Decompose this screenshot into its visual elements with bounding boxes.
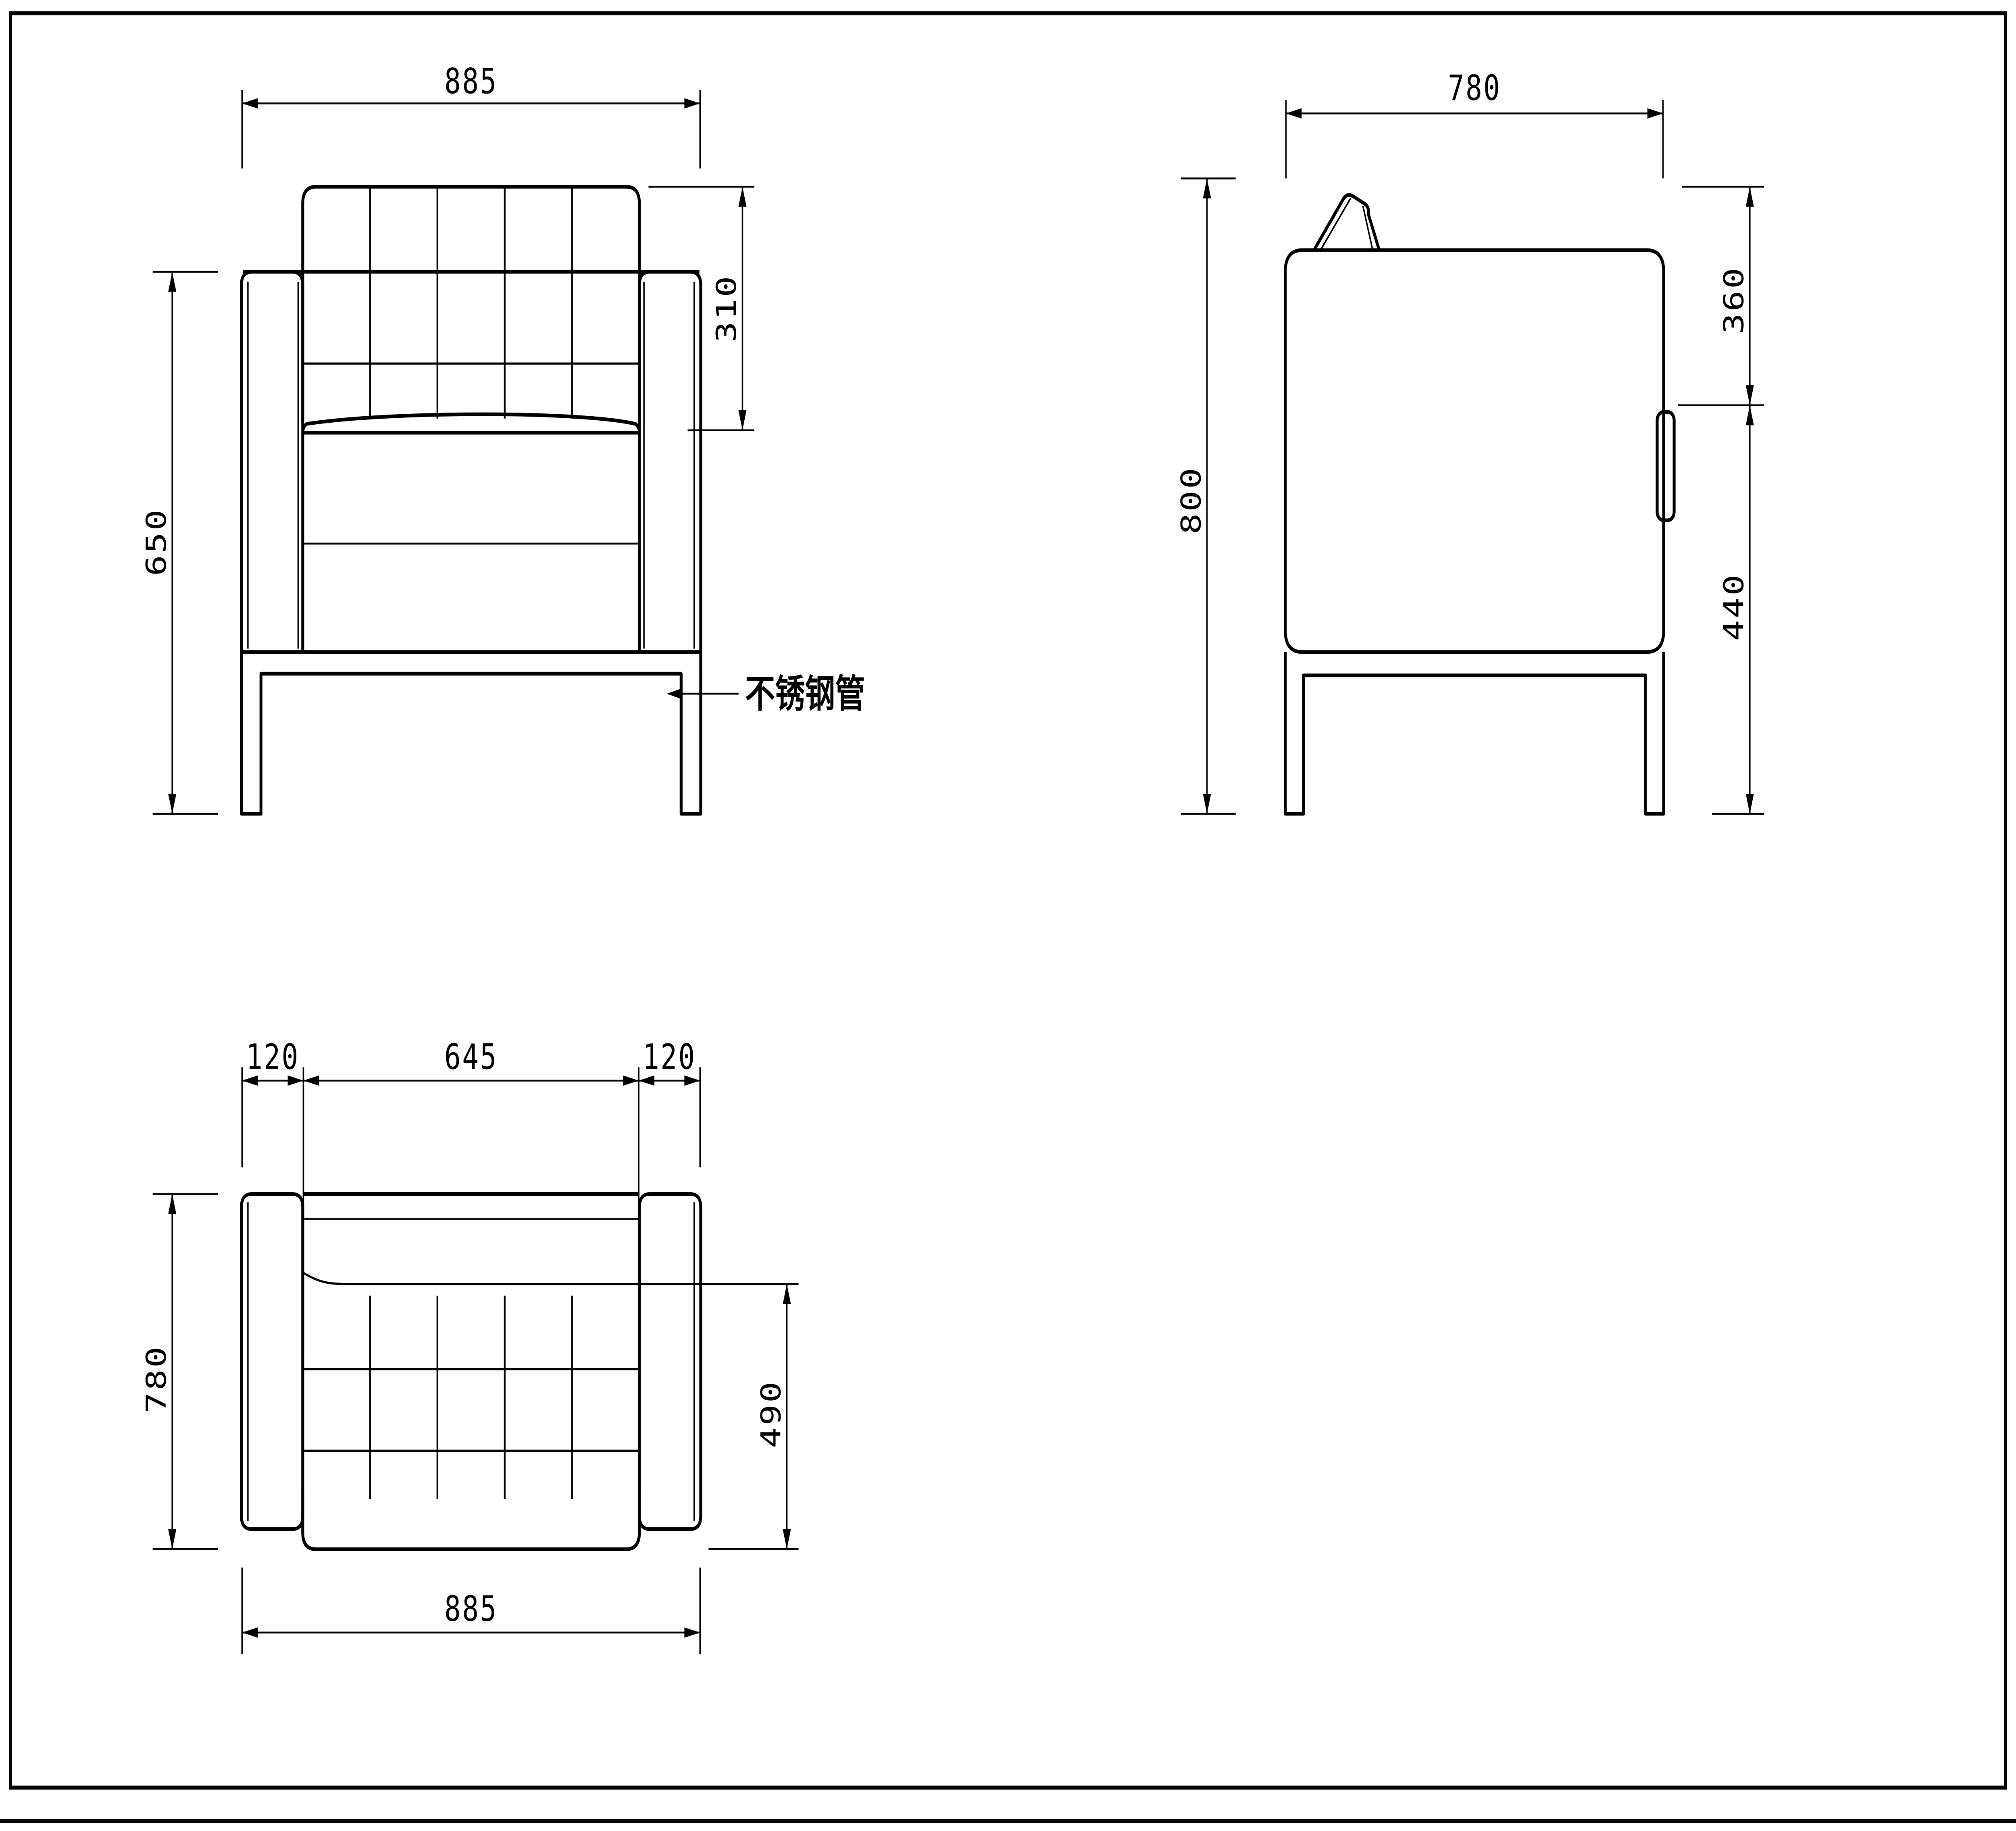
left-armrest (242, 272, 303, 652)
dim-arrow (1746, 405, 1754, 425)
dim-arrow (168, 1529, 176, 1549)
backrest-vertical-seams (370, 187, 572, 419)
dim-text-arm-floor-height: 650 (141, 508, 172, 576)
dim-arrow (623, 1076, 639, 1086)
dim-text-seat-height: 440 (1718, 573, 1750, 641)
dim-text-arm-right: 120 (643, 1037, 696, 1077)
dim-top-depth: 780 (141, 1194, 218, 1549)
dim-text-total-height: 800 (1175, 466, 1207, 534)
dim-seat-height: 440 (1712, 405, 1764, 814)
dim-arrow (1746, 794, 1754, 814)
dim-front-width: 885 (242, 61, 700, 168)
dim-arrow (242, 1627, 258, 1638)
dim-arrow (1286, 108, 1302, 119)
top-right-armrest (639, 1194, 701, 1529)
side-legs-and-rail (1285, 652, 1664, 814)
dim-side-depth: 780 (1286, 68, 1663, 178)
cad-drawing-canvas: 885 310 650 不锈钢管 (0, 0, 2016, 1831)
extension-lines (242, 1067, 700, 1351)
dim-total-height: 800 (1175, 178, 1235, 813)
dim-back-upper: 360 (1678, 187, 1764, 405)
side-body (1285, 250, 1664, 652)
leader-arrow (667, 688, 683, 699)
dim-arrow (1203, 178, 1211, 198)
dim-text-seat-depth: 490 (755, 1380, 787, 1448)
dim-arrow (1647, 108, 1663, 119)
backrest-outline (303, 187, 639, 422)
dim-arrow (168, 272, 176, 292)
dim-arrow (242, 98, 258, 109)
dim-arrow (783, 1529, 791, 1549)
dim-arm-floor-height: 650 (141, 272, 218, 814)
seat-row-seams (303, 1369, 639, 1451)
right-armrest-seams (644, 282, 694, 649)
back-cushion-tilted (1314, 195, 1379, 250)
dim-arrow (684, 98, 700, 109)
top-view: 120 645 120 780 490 885 (141, 1037, 798, 1654)
front-view: 885 310 650 不锈钢管 (141, 61, 865, 813)
dim-text-seat-width: 645 (444, 1037, 498, 1077)
dim-text-front-width: 885 (444, 61, 498, 102)
dim-arrow (303, 1076, 319, 1086)
back-handle-bump (1657, 412, 1674, 520)
border-rect (10, 13, 2006, 1787)
leader-stainless-tube: 不锈钢管 (667, 672, 865, 716)
dim-arrow (684, 1627, 700, 1638)
dim-arrow (1203, 794, 1211, 814)
seat-vertical-seams (370, 1296, 572, 1499)
legs-and-rail (242, 652, 701, 814)
dim-text-back-upper: 360 (1718, 266, 1750, 334)
seat-cushion (303, 414, 639, 433)
dim-arrow (738, 187, 746, 207)
cushion-back-edge (303, 1272, 639, 1284)
dim-text-arm-left: 120 (246, 1037, 299, 1077)
dim-arrow (1746, 187, 1754, 207)
side-view: 780 800 360 440 (1175, 68, 1764, 814)
dim-arrow (1746, 385, 1754, 405)
dim-arrow (738, 410, 746, 430)
label-stainless-tube: 不锈钢管 (745, 672, 865, 716)
dim-arrow (168, 794, 176, 814)
dim-text-backrest-height: 310 (711, 274, 742, 342)
dim-text-top-depth: 780 (141, 1345, 172, 1413)
extension-lines (1286, 100, 1663, 178)
dim-text-overall-width: 885 (444, 1589, 498, 1629)
dim-overall-width: 885 (242, 1568, 700, 1654)
top-left-armrest (242, 1194, 303, 1529)
left-armrest-seams (248, 282, 298, 649)
dim-arrow (168, 1194, 176, 1214)
right-armrest (639, 272, 701, 652)
dim-arrow (783, 1284, 791, 1304)
dim-seat-depth: 490 (639, 1284, 799, 1549)
seat-front-edge (303, 1489, 639, 1549)
dim-text-side-depth: 780 (1448, 68, 1501, 108)
